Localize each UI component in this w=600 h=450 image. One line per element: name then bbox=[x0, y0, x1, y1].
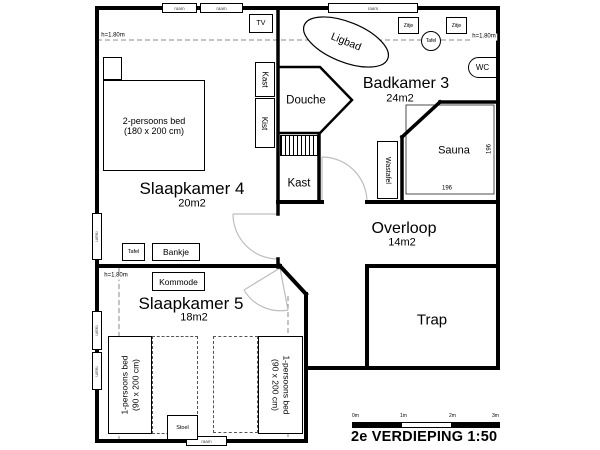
double-bed: 2-persoons bed (180 x 200 cm) bbox=[103, 80, 205, 171]
kast-label: Kast bbox=[260, 71, 269, 87]
table-tafel: Tafel bbox=[122, 243, 145, 261]
window-label: raam bbox=[216, 6, 226, 11]
zitje-label: Zitje bbox=[404, 23, 413, 29]
window-left-3: raam bbox=[92, 352, 102, 390]
single-bed-size: (90 x 200 cm) bbox=[270, 339, 281, 431]
window-top-2: raam bbox=[200, 3, 243, 13]
single-bed-size: (90 x 200 cm) bbox=[130, 339, 141, 431]
seat-zitje-1: Zitje bbox=[398, 17, 419, 34]
room-name-douche: Douche bbox=[286, 94, 326, 107]
room-name-slaapkamer4: Slaapkamer 4 bbox=[140, 179, 245, 199]
room-name-trap: Trap bbox=[417, 311, 447, 328]
room-area-badkamer3: 24m2 bbox=[386, 93, 414, 106]
toilet-wc: WC bbox=[468, 57, 497, 78]
room-name-sauna: Sauna bbox=[438, 145, 470, 158]
nightstand bbox=[103, 57, 122, 80]
room-name-kast: Kast bbox=[287, 177, 310, 190]
height-annotation-2: h=1.80m bbox=[471, 34, 497, 41]
scale-tick-2m: 2m bbox=[449, 413, 456, 419]
chair-stoel: Stoel bbox=[167, 415, 198, 440]
plan-title: 2e VERDIEPING 1:50 bbox=[351, 429, 497, 445]
window-label: raam bbox=[174, 6, 184, 11]
kommode-label: Kommode bbox=[159, 277, 198, 287]
floor-plan: raam raam raam raam raam raam raam TV 2-… bbox=[0, 0, 600, 450]
washbasin-wastafel: Wastafel bbox=[377, 141, 398, 199]
single-bed-left: 1-persoons bed (90 x 200 cm) bbox=[108, 336, 152, 434]
height-annotation-3: h=1.80m bbox=[103, 273, 129, 280]
room-area-slaapkamer5: 18m2 bbox=[180, 312, 208, 325]
scale-bar-segment bbox=[451, 423, 499, 427]
window-left-2: raam bbox=[92, 311, 102, 350]
room-area-overloop: 14m2 bbox=[388, 237, 416, 250]
sauna-depth-dimension: 196 bbox=[487, 143, 494, 155]
bankje-label: Bankje bbox=[163, 247, 189, 257]
height-annotation-1: h=1.80m bbox=[100, 33, 126, 40]
dresser-kommode: Kommode bbox=[152, 272, 205, 291]
scale-bar-segment bbox=[353, 423, 402, 427]
window-label: raam bbox=[95, 366, 100, 376]
single-bed-label: 1-persoons bed bbox=[281, 339, 292, 431]
window-top-1: raam bbox=[162, 3, 197, 13]
wastafel-label: Wastafel bbox=[384, 157, 391, 184]
window-label: raam bbox=[95, 325, 100, 335]
scale-tick-0m: 0m bbox=[352, 413, 359, 419]
zitje-label: Zitje bbox=[452, 23, 461, 29]
round-table-label: Tafel bbox=[426, 38, 437, 44]
scale-tick-3m: 3m bbox=[492, 413, 499, 419]
single-bed-right-extension bbox=[213, 336, 258, 433]
tafel-label: Tafel bbox=[128, 249, 140, 255]
kist-label: Kist bbox=[261, 116, 270, 129]
window-left-1: raam bbox=[92, 213, 102, 260]
bench-bankje: Bankje bbox=[152, 243, 200, 261]
single-bed-right: 1-persoons bed (90 x 200 cm) bbox=[258, 336, 303, 434]
scale-tick-1m: 1m bbox=[400, 413, 407, 419]
seat-zitje-2: Zitje bbox=[446, 17, 467, 34]
double-bed-size: (180 x 200 cm) bbox=[124, 126, 184, 136]
room-area-slaapkamer4: 20m2 bbox=[178, 198, 206, 211]
room-name-overloop: Overloop bbox=[372, 220, 437, 238]
stoel-label: Stoel bbox=[176, 425, 189, 431]
single-bed-label: 1-persoons bed bbox=[119, 339, 130, 431]
window-top-3: raam bbox=[328, 3, 418, 13]
tv-label: TV bbox=[257, 20, 266, 27]
window-label: raam bbox=[201, 439, 211, 444]
wc-label: WC bbox=[476, 63, 489, 72]
window-label: raam bbox=[368, 6, 378, 11]
scale-bar bbox=[352, 422, 500, 428]
window-label: raam bbox=[95, 231, 100, 241]
wardrobe-kast: Kast bbox=[255, 62, 275, 97]
chest-kist: Kist bbox=[255, 98, 275, 148]
scale-bar-segment bbox=[402, 423, 451, 427]
round-table: Tafel bbox=[421, 31, 441, 51]
double-bed-label: 2-persoons bed bbox=[123, 116, 186, 126]
sauna-width-dimension: 196 bbox=[441, 186, 453, 193]
tv-cabinet: TV bbox=[249, 14, 273, 33]
stairs-hatch bbox=[280, 135, 318, 156]
room-name-badkamer3: Badkamer 3 bbox=[363, 75, 449, 93]
